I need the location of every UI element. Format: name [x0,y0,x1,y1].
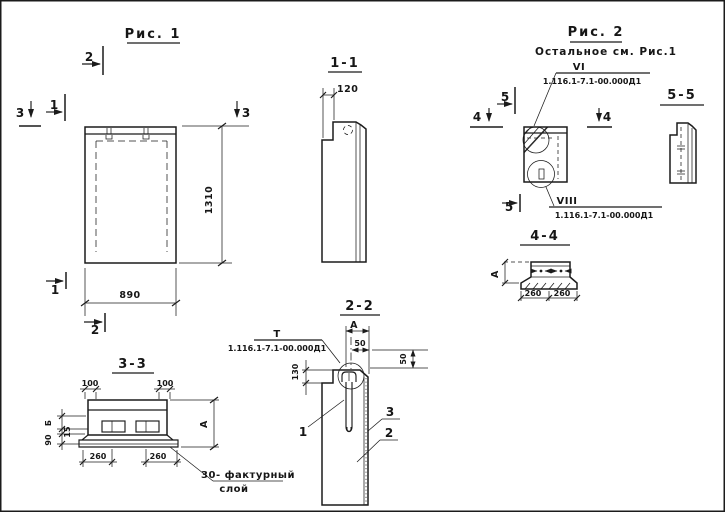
dim-90: 90 [44,434,53,446]
cut-marker-4-right: 4 [603,110,611,124]
profile-2-2-outline [322,370,368,505]
figure-2: Рис. 2 Остальное см. Рис.1 VI 1.116.1-7.… [470,25,677,220]
cut-marker-5-bottom: 5 [505,200,513,214]
cut-marker-3-left: 3 [16,106,24,120]
section-5-5-title: 5-5 [667,88,697,103]
figure-2-subtitle: Остальное см. Рис.1 [535,46,677,58]
panel-fragment-outline [524,127,567,182]
drawing-canvas: Рис. 1 2 1 3 3 [0,0,725,512]
detail-circle-viii [528,161,555,188]
dim-100-left: 100 [82,379,99,388]
figure-2-title: Рис. 2 [568,25,625,40]
base-slab [79,440,178,447]
dim-a-44: А [490,270,501,278]
callout-viii-designation: 1.116.1-7.1-00.000Д1 [555,211,654,220]
part-label-2: 2 [385,426,393,440]
note-textured-layer-line1: 30- фактурный [201,469,295,481]
cut-marker-5-top: 5 [501,90,509,104]
dim-width: 890 [119,290,140,301]
dim-notch-120: 120 [337,84,358,95]
part-label-3: 3 [386,405,394,419]
profile-3-3-outline [88,400,167,435]
figure-1-title: Рис. 1 [125,27,182,42]
dim-50-right: 50 [399,353,408,365]
callout-t-ref: Т [273,329,280,340]
section-3-3-title: 3-3 [118,357,148,372]
anchor-hidden-detail [344,126,353,135]
dim-260-right-44: 260 [554,289,571,298]
dim-100-right: 100 [157,379,174,388]
dim-260-left-33: 260 [90,452,107,461]
callout-t-designation: 1.116.1-7.1-00.000Д1 [228,344,327,353]
profile-1-1-outline [322,122,366,262]
cut-marker-2-bottom: 2 [91,323,99,337]
dim-260-left-44: 260 [525,289,542,298]
cut-marker-2-top: 2 [85,50,93,64]
callout-vi-ref: VI [573,62,585,73]
callout-viii-ref: VIII [557,196,578,207]
drawing-sheet: Рис. 1 2 1 3 3 [0,0,725,512]
dim-130: 130 [291,363,300,380]
dim-a-33: А [199,420,210,428]
section-4-4: 4-4 А 260 260 [490,229,580,301]
part-label-1: 1 [299,425,307,439]
dim-a-22: А [350,320,358,331]
section-3-3: 3-3 100 100 Б 15 [44,357,295,495]
figure-1: Рис. 1 2 1 3 3 [16,27,250,337]
cut-marker-4-left: 4 [473,110,481,124]
cut-marker-1-top: 1 [50,98,58,112]
section-5-5: 5-5 [660,88,704,183]
section-1-1: 1-1 120 [320,56,366,262]
dim-b: Б [44,420,53,426]
section-1-1-title: 1-1 [330,56,360,71]
callout-vi-designation: 1.116.1-7.1-00.000Д1 [543,77,642,86]
cut-marker-3-right: 3 [242,106,250,120]
dim-260-right-33: 260 [150,452,167,461]
dim-height: 1310 [204,186,215,214]
dim-50-top: 50 [354,339,366,348]
cut-marker-1-bottom: 1 [51,283,59,297]
dim-15: 15 [63,426,72,438]
section-4-4-title: 4-4 [530,229,560,244]
section-2-2-title: 2-2 [345,299,375,314]
panel-front-outline [85,127,176,263]
note-textured-layer-line2: слой [219,484,248,495]
